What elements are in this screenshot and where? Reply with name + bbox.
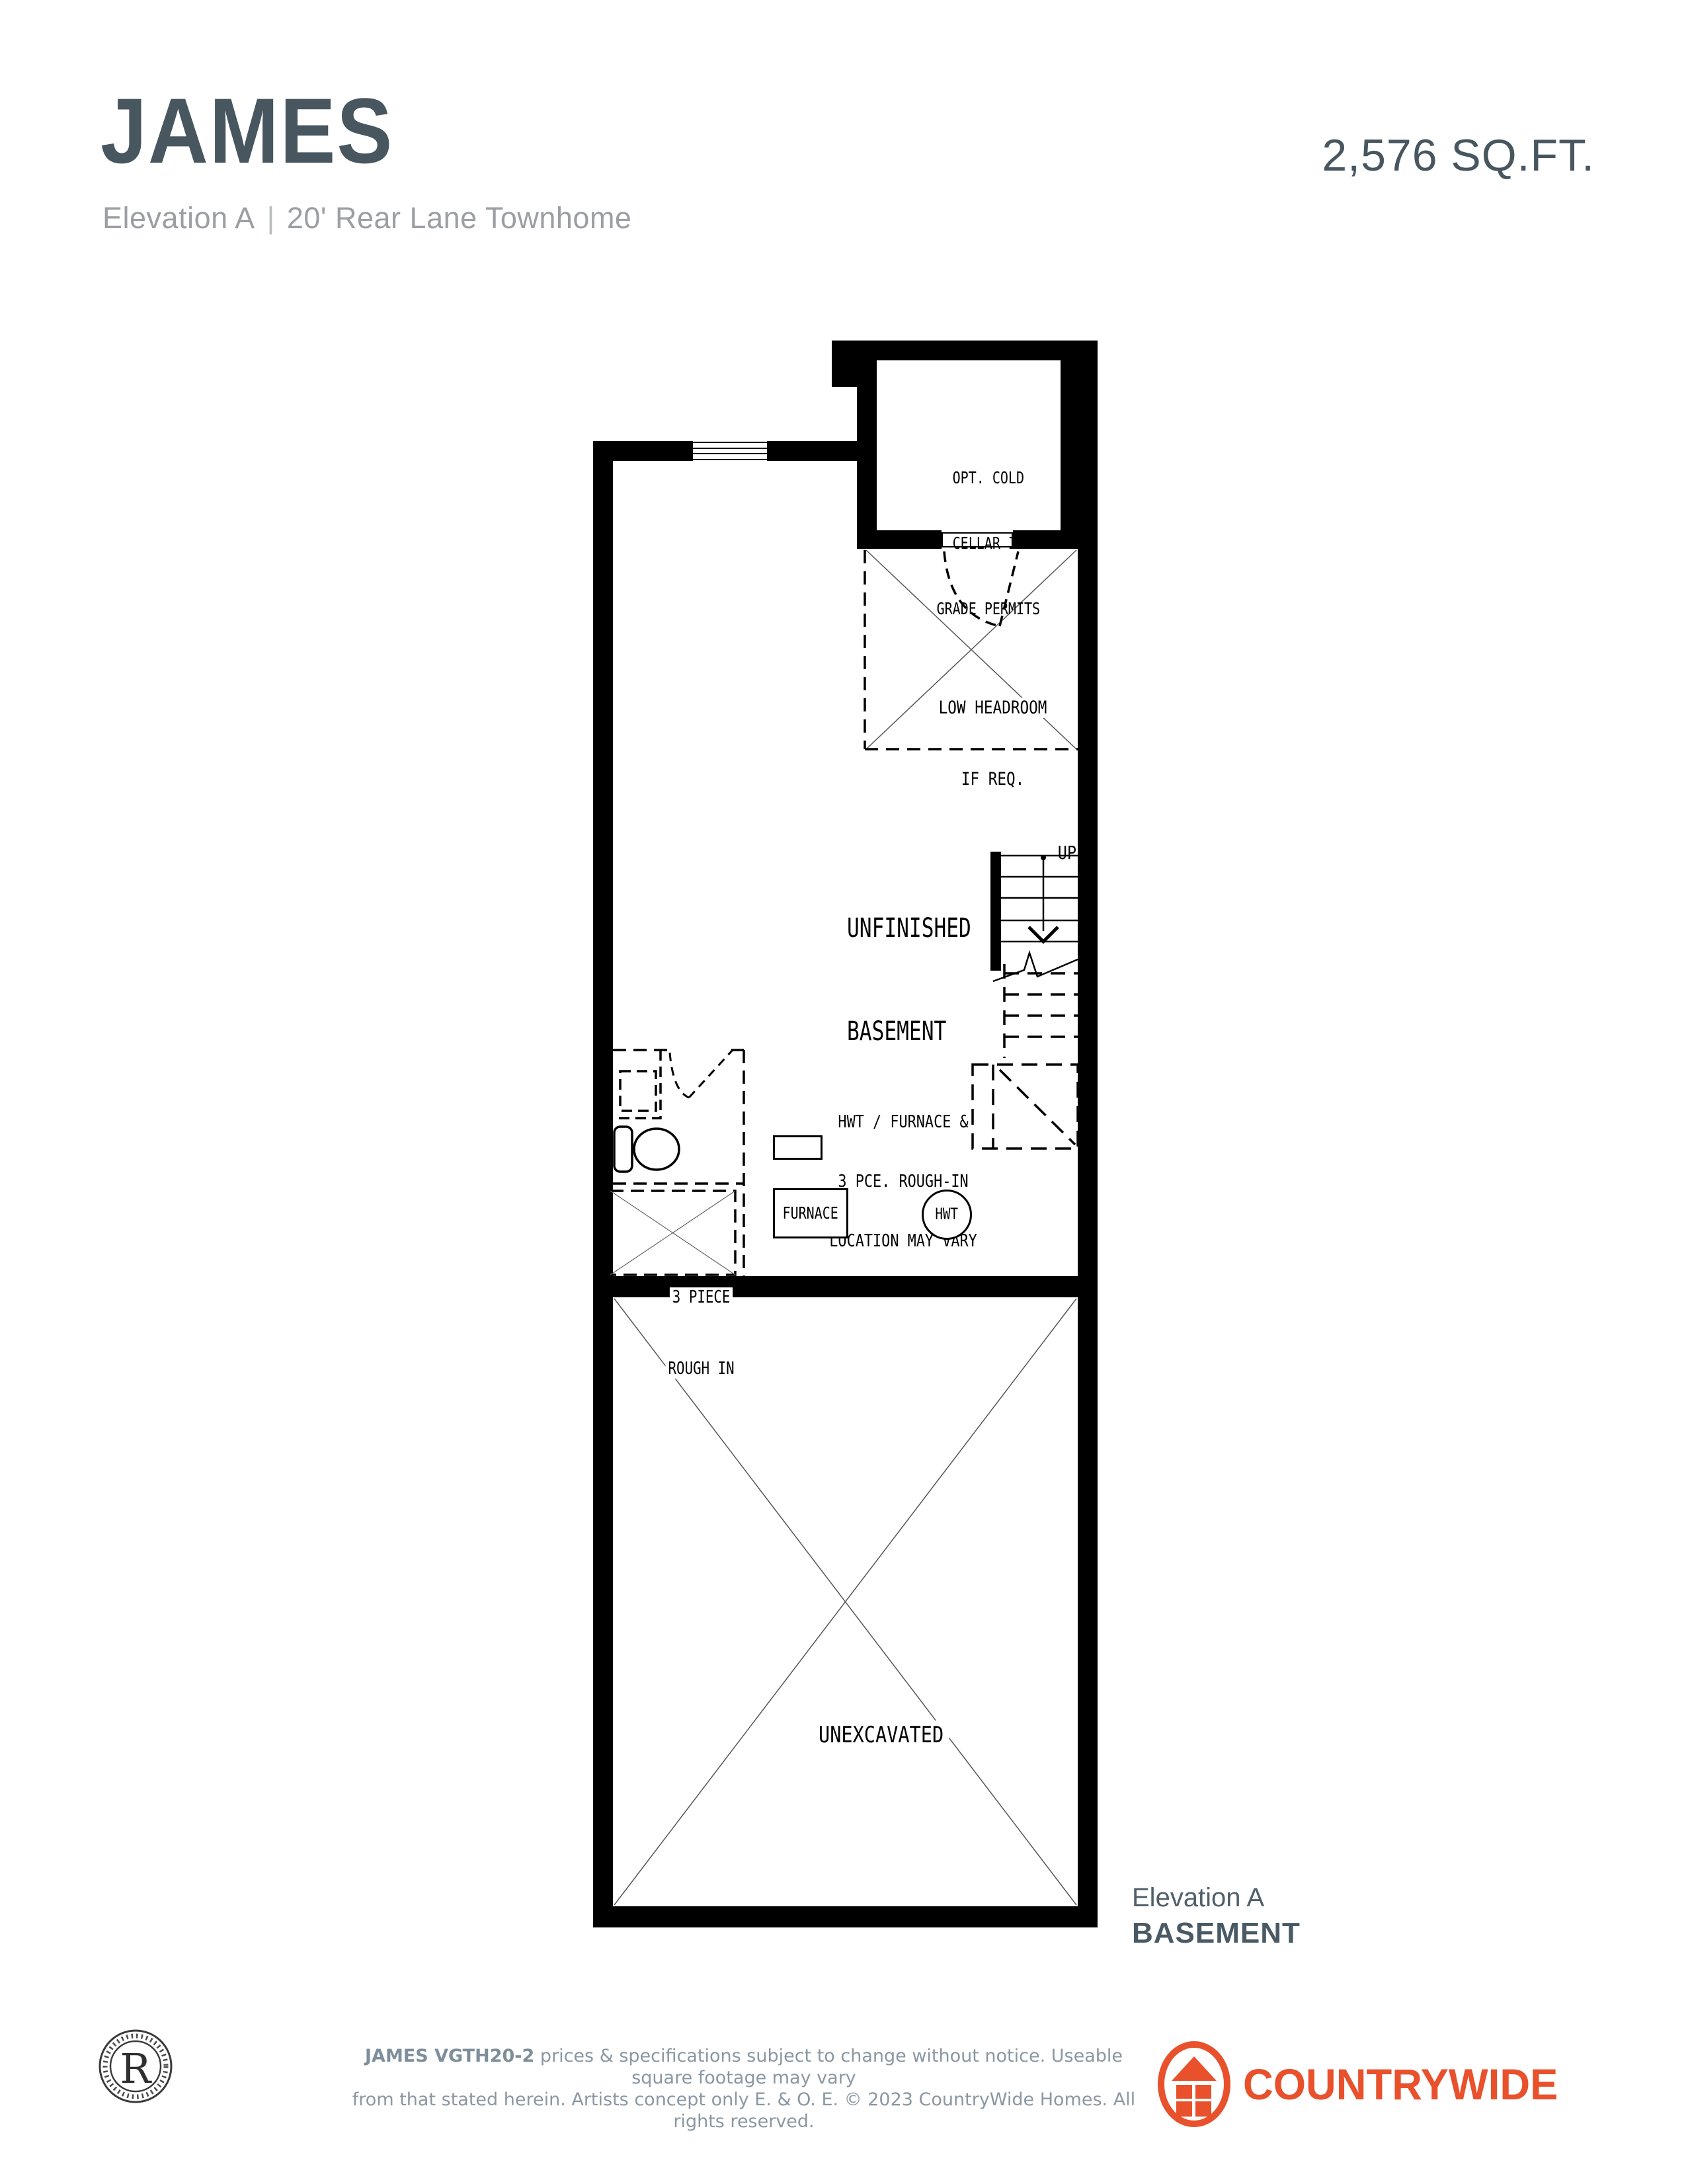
brand-country: COUNTRY xyxy=(1243,2060,1449,2109)
seal-letter: R xyxy=(98,2044,173,2093)
hwt-circle: HWT xyxy=(922,1190,972,1240)
furnace-box: FURNACE xyxy=(773,1188,848,1238)
disclaimer-line2: from that stated herein. Artists concept… xyxy=(352,2089,1135,2132)
shower-icon xyxy=(613,1050,661,1118)
mechanical-note-label: HWT / FURNACE & 3 PCE. ROUGH-IN LOCATION… xyxy=(774,1053,973,1311)
plan-caption: Elevation A BASEMENT xyxy=(1132,1883,1301,1950)
bathroom-door-swing-icon xyxy=(670,1050,733,1098)
floorplan-page: JAMES Elevation A|20' Rear Lane Townhome… xyxy=(0,0,1688,2184)
rough-in-label: 3 PIECE ROUGH IN xyxy=(615,1214,731,1452)
mechanical-equipment-box xyxy=(773,1135,823,1160)
stairs-hidden-treads xyxy=(1004,964,1078,1058)
disclaimer-line1: prices & specifications subject to chang… xyxy=(534,2046,1123,2088)
countrywide-logo: COUNTRYWIDE xyxy=(1156,2040,1605,2132)
brand-wide: WIDE xyxy=(1449,2060,1558,2109)
disclaimer-plan-code: JAMES VGTH20-2 xyxy=(365,2046,534,2066)
brand-wordmark: COUNTRYWIDE xyxy=(1243,2059,1558,2109)
caption-elevation: Elevation A xyxy=(1132,1883,1301,1913)
stairs-up-label: UP xyxy=(1005,817,1084,889)
registered-seal: R xyxy=(98,2029,173,2104)
countrywide-house-icon xyxy=(1156,2040,1235,2132)
caption-level: BASEMENT xyxy=(1132,1917,1301,1950)
toilet-icon xyxy=(614,1127,679,1172)
disclaimer-text: JAMES VGTH20-2 prices & specifications s… xyxy=(344,2045,1144,2132)
unexcavated-label: UNEXCAVATED xyxy=(746,1691,945,1779)
